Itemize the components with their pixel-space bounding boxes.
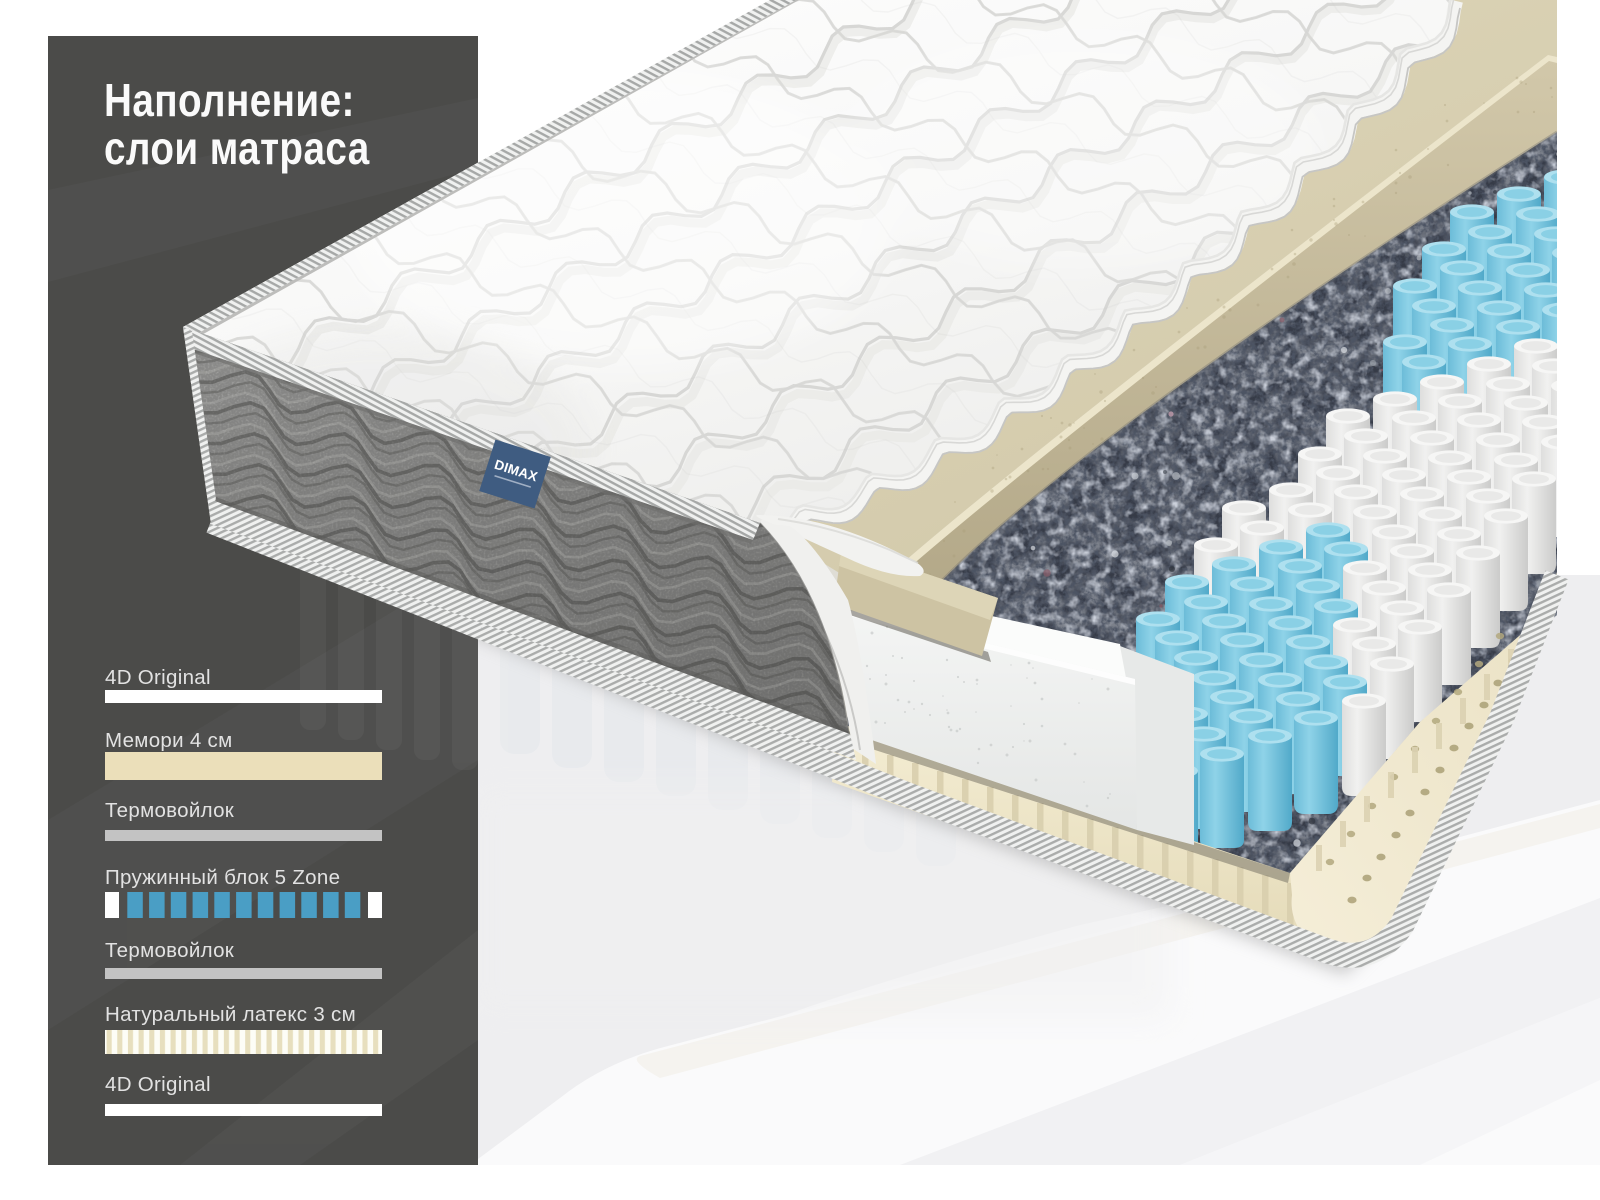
svg-text:4D Original: 4D Original — [105, 1073, 211, 1096]
svg-text:Мемори 4 см: Мемори 4 см — [105, 729, 233, 752]
svg-text:Наполнение:: Наполнение: — [104, 75, 355, 126]
svg-text:4D Original: 4D Original — [105, 666, 211, 689]
svg-text:слои матраса: слои матраса — [104, 123, 370, 174]
svg-text:Термовойлок: Термовойлок — [105, 939, 235, 962]
svg-text:Натуральный латекс 3 см: Натуральный латекс 3 см — [105, 1003, 356, 1026]
svg-text:Пружинный блок 5 Zone: Пружинный блок 5 Zone — [105, 866, 340, 889]
svg-text:Термовойлок: Термовойлок — [105, 799, 235, 822]
